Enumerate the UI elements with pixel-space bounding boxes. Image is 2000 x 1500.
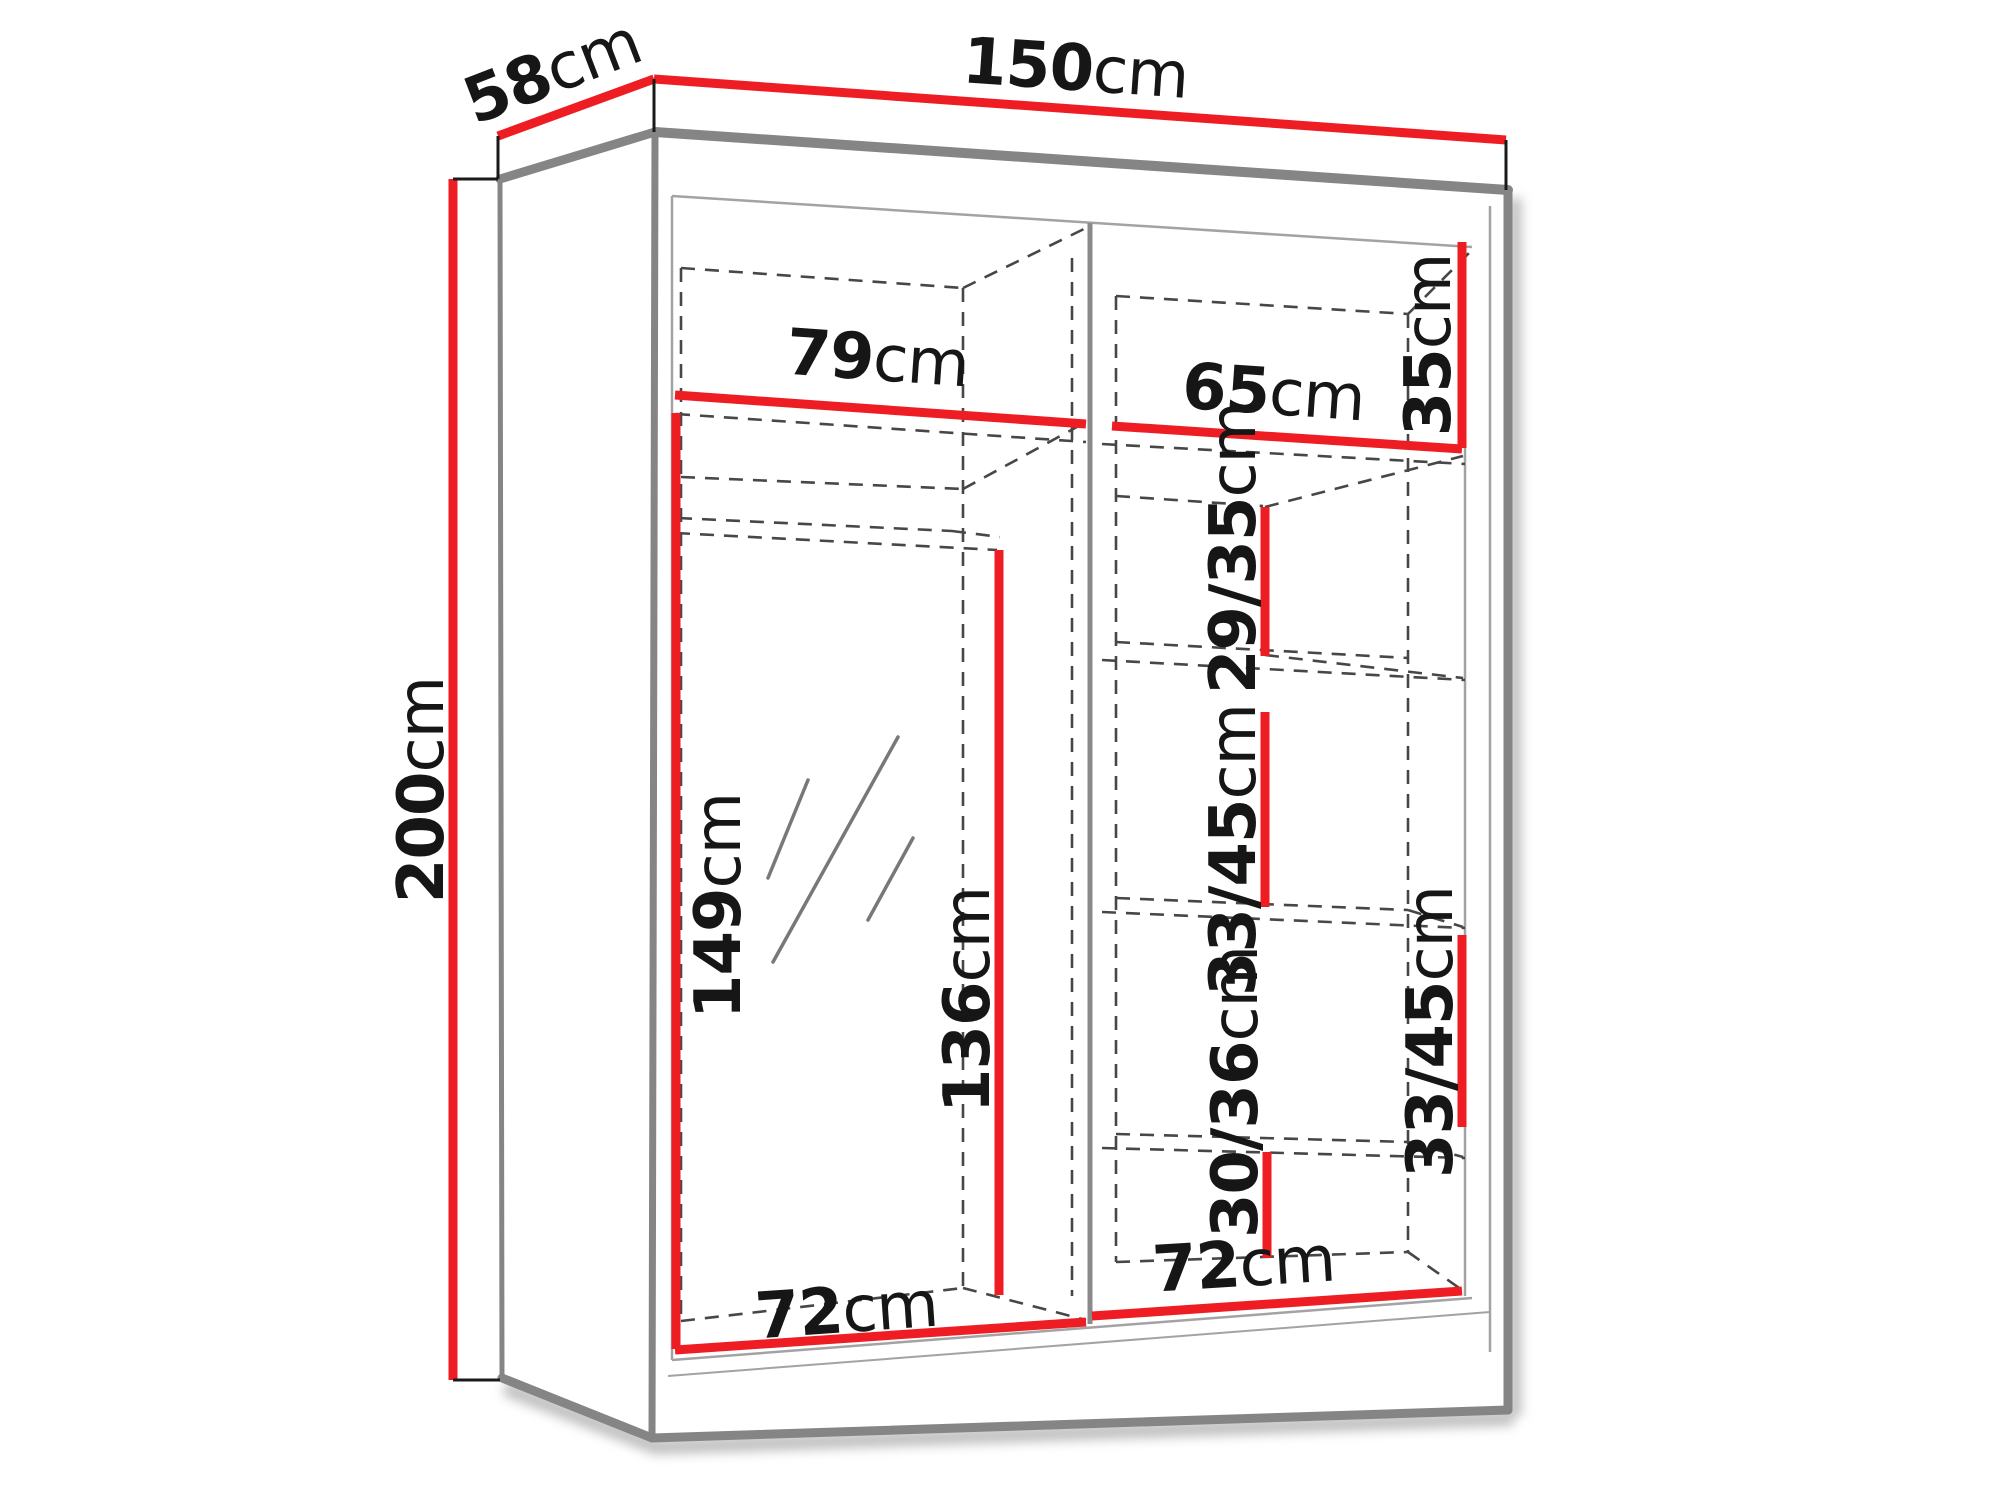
label-value: 35: [1392, 349, 1466, 436]
label-unit: cm: [1267, 356, 1367, 436]
label-left-149cm: 149cm: [682, 793, 756, 1019]
label-value: 72: [753, 1274, 845, 1354]
label-bottom-72cm-right: 72cm: [1150, 1223, 1337, 1308]
label-value: 30/36: [1199, 1042, 1273, 1239]
label-value: 150: [960, 24, 1095, 107]
label-unit: cm: [931, 887, 1005, 983]
label-unit: cm: [1394, 886, 1468, 982]
label-unit: cm: [1197, 704, 1271, 800]
label-value: 33/45: [1394, 982, 1468, 1179]
wardrobe-dimension-diagram: 58cm 150cm 200cm 79cm 65cm 35cm 149cm 13…: [0, 0, 2000, 1500]
label-unit: cm: [1090, 33, 1190, 113]
label-value: 72: [1150, 1228, 1241, 1307]
label-value: 200: [385, 772, 459, 903]
label-height-200cm: 200cm: [385, 677, 459, 903]
label-unit: cm: [1199, 946, 1273, 1042]
label-value: 29/35: [1197, 498, 1271, 695]
label-unit: cm: [871, 322, 971, 402]
label-left-136cm: 136cm: [931, 887, 1005, 1113]
label-unit: cm: [840, 1268, 940, 1348]
label-unit: cm: [385, 677, 459, 773]
label-gap-2935cm: 29/35cm: [1197, 402, 1271, 694]
label-shelf-35cm: 35cm: [1392, 254, 1466, 437]
front-left-corner-edge: [652, 132, 655, 1438]
label-shelf-79cm: 79cm: [784, 316, 971, 403]
label-gap-3036cm: 30/36cm: [1199, 946, 1273, 1238]
label-unit: cm: [1197, 402, 1271, 498]
label-width-150cm: 150cm: [960, 24, 1191, 114]
side-back-edge: [500, 179, 502, 1378]
label-value: 136: [931, 982, 1005, 1113]
label-unit: cm: [1392, 254, 1466, 350]
label-unit: cm: [1237, 1223, 1337, 1303]
label-bottom-72cm-left: 72cm: [753, 1268, 940, 1355]
label-value: 79: [784, 316, 876, 396]
side-face: [500, 132, 655, 1438]
front-face: [652, 132, 1508, 1438]
label-unit: cm: [682, 793, 756, 889]
label-value: 149: [682, 888, 756, 1019]
label-gap-3345cm-right: 33/45cm: [1394, 886, 1468, 1178]
